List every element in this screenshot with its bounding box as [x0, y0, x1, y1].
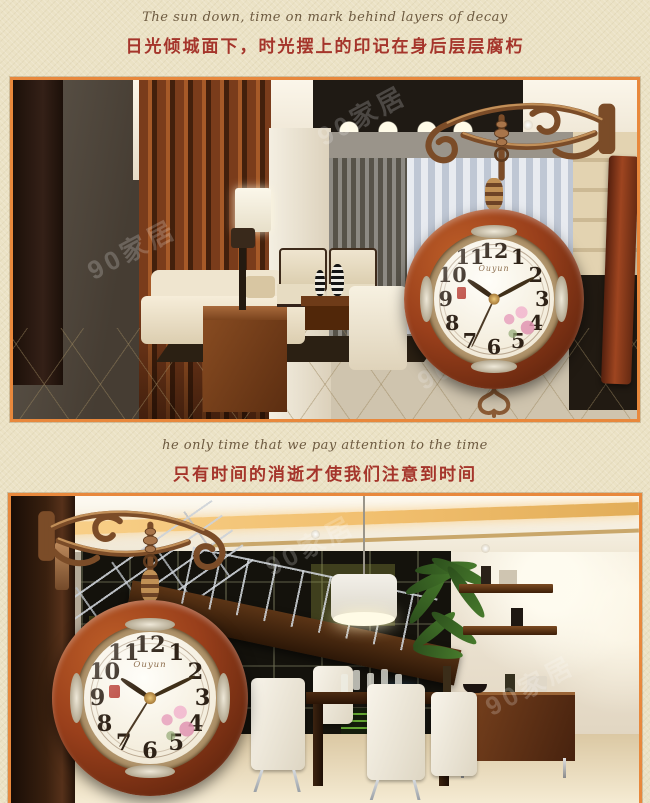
shelf-decor	[511, 608, 523, 626]
table-leg	[313, 704, 323, 786]
drink-glass	[353, 670, 360, 690]
floating-shelf	[463, 626, 557, 635]
product-photo-living-room: Ouyun 121234567891011 90家居 90家居 90家居	[10, 77, 640, 422]
decor-glassware	[527, 676, 547, 692]
decor-bottle	[505, 674, 515, 692]
glass-glare	[434, 239, 555, 360]
dining-chair	[431, 692, 477, 776]
decor-lamp-pole	[239, 240, 246, 310]
shelf-decor	[481, 566, 491, 584]
product-detail-page: { "page": { "background": "#ebe2c5", "fr…	[0, 0, 650, 800]
downlight	[311, 530, 320, 539]
filigree-ornament	[555, 276, 568, 323]
scroll-bracket-graphic	[391, 94, 621, 192]
decor-lamp-head	[231, 228, 255, 248]
clock-crown-ornament	[485, 178, 503, 210]
pendant-cord	[363, 496, 365, 576]
downlight	[481, 544, 490, 553]
drink-glass	[341, 674, 348, 694]
white-cube-chair	[349, 286, 407, 370]
dining-chair	[367, 684, 425, 780]
finial-ornament	[467, 386, 521, 418]
table-lamp	[235, 188, 271, 232]
caption-english-2: he only time that we pay attention to th…	[0, 438, 650, 453]
product-photo-dining-room: Ouyun 121234567891011 90家居 90家居	[8, 493, 642, 803]
wood-side-table	[203, 306, 287, 412]
striped-vase	[315, 270, 325, 296]
dining-chair	[251, 678, 305, 770]
filigree-ornament	[471, 360, 518, 373]
filigree-ornament	[471, 225, 518, 238]
caption-english-1: The sun down, time on mark behind layers…	[0, 10, 650, 25]
clock-crown-ornament	[141, 570, 159, 602]
shelf-decor	[499, 570, 517, 584]
sideboard-leg	[563, 758, 566, 778]
caption-chinese-2: 只有时间的消逝才使我们注意到时间	[0, 460, 650, 485]
glass-glare	[84, 632, 215, 763]
floating-shelf	[459, 584, 553, 593]
striped-vase	[331, 264, 344, 296]
sofa-pillow	[245, 276, 275, 298]
caption-chinese-1: 日光倾城面下，时光摆上的印记在身后层层腐朽	[0, 32, 650, 57]
double-sided-wall-clock: Ouyun 121234567891011	[404, 209, 584, 389]
double-sided-wall-clock: Ouyun 121234567891011	[52, 600, 248, 796]
filigree-ornament	[420, 276, 433, 323]
pendant-glow	[333, 612, 395, 626]
